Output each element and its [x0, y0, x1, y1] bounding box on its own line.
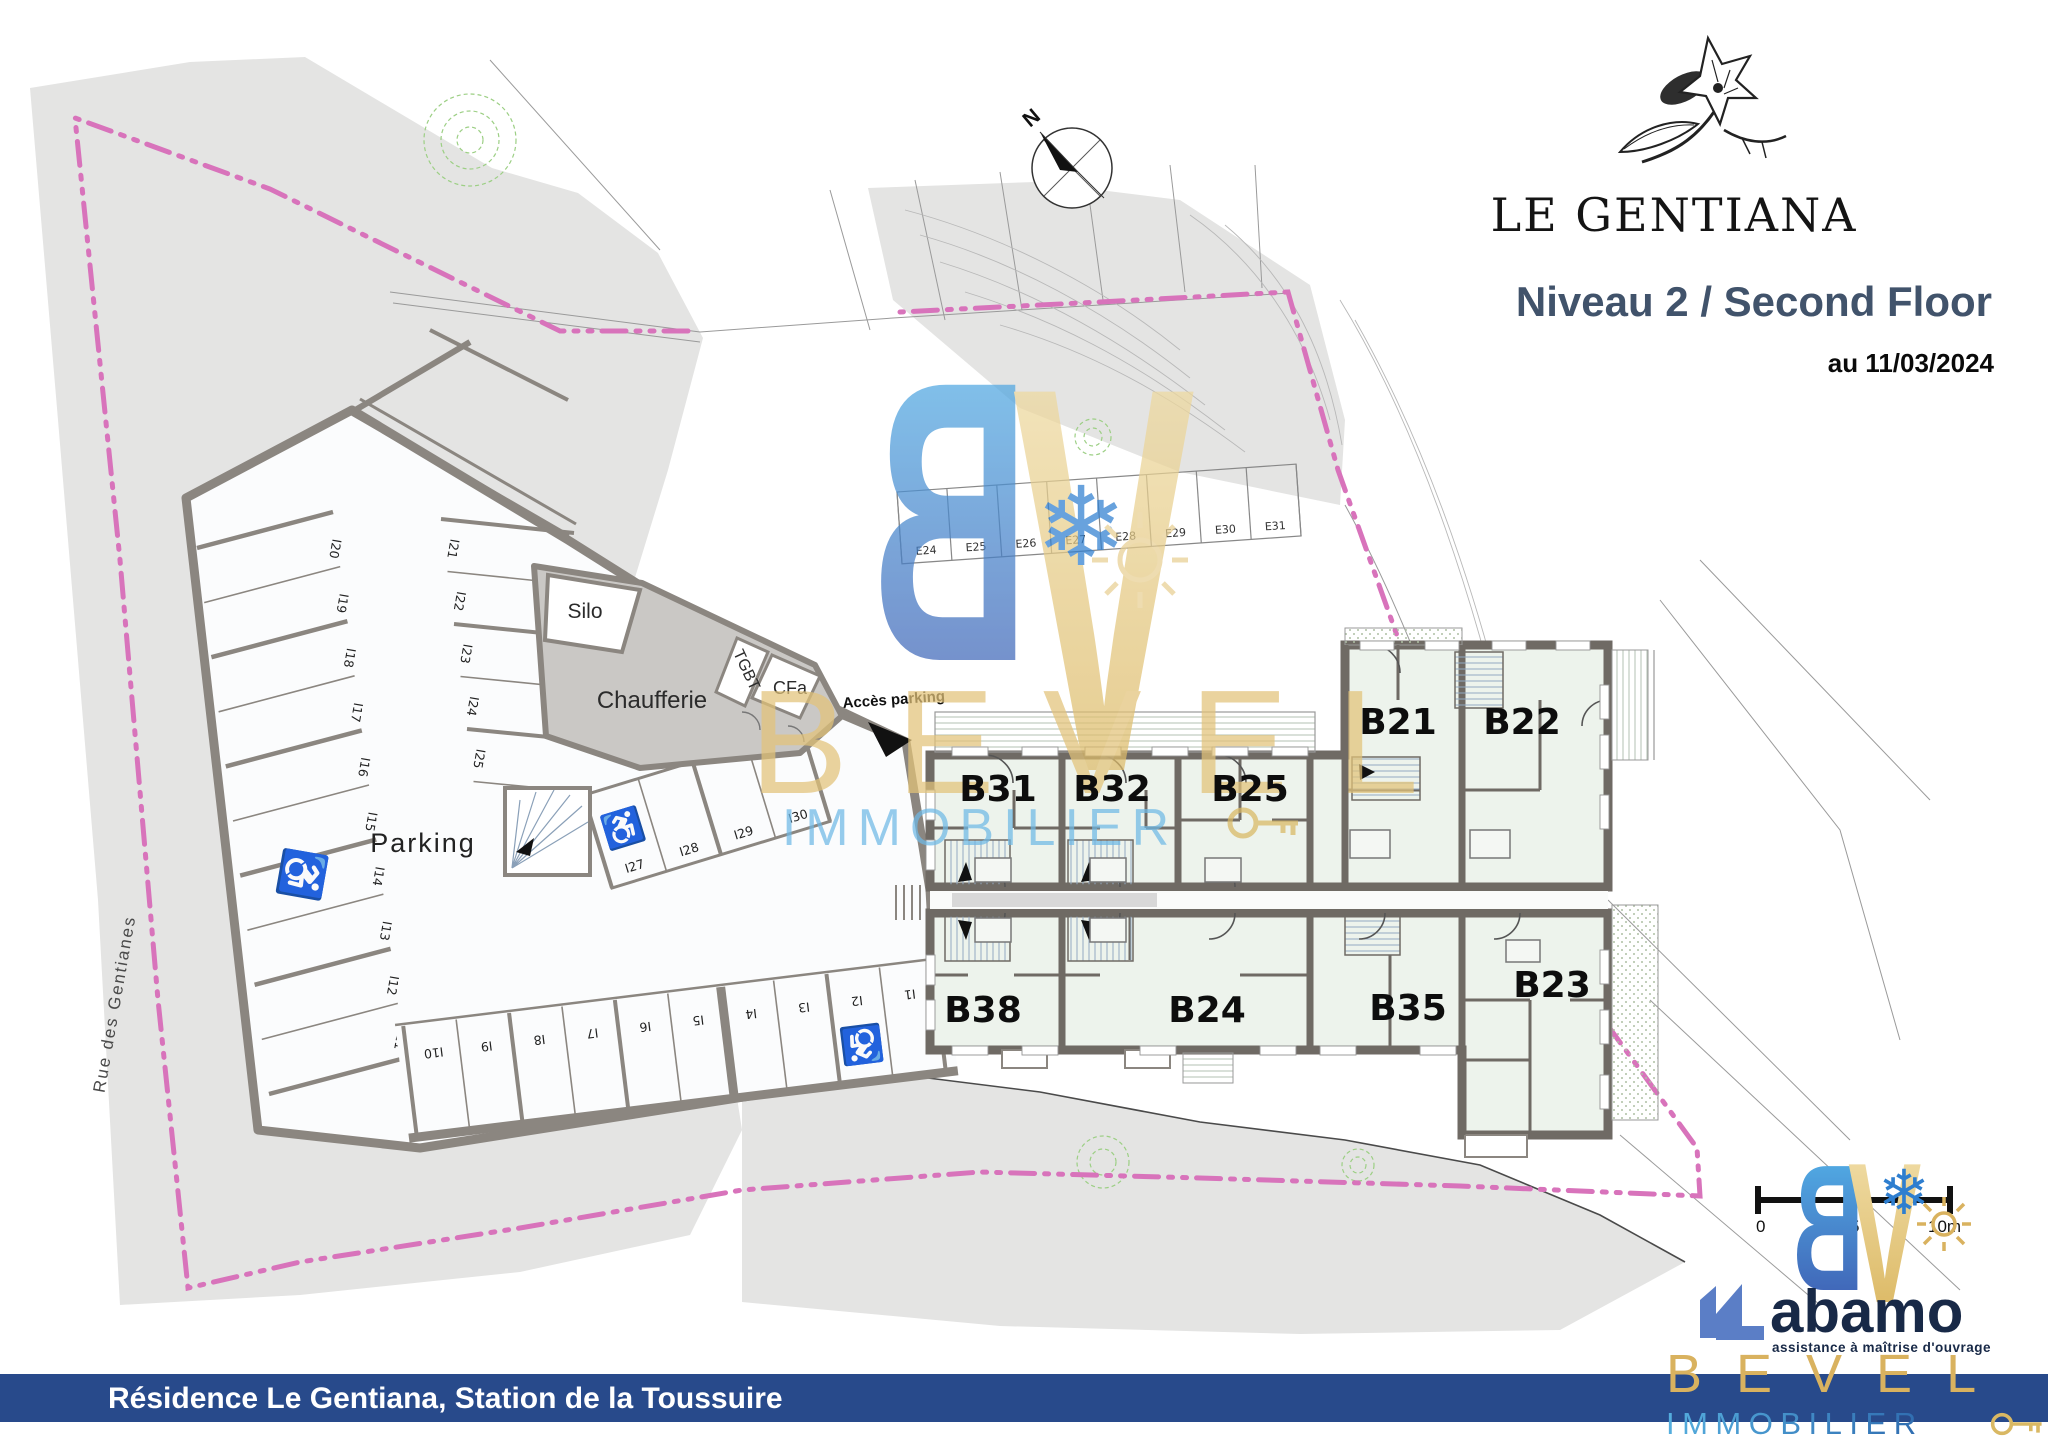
- unit-label: B22: [1483, 702, 1561, 743]
- window: [1260, 1046, 1296, 1055]
- scale-zero: 0: [1756, 1217, 1765, 1236]
- east-balcony: [1612, 650, 1648, 760]
- window: [1600, 1010, 1609, 1044]
- stall-label: I5: [692, 1012, 705, 1028]
- window: [1600, 735, 1609, 769]
- unit-label: B32: [1073, 769, 1151, 810]
- window: [1600, 685, 1609, 719]
- logo-bevel-immobilier: BEVEL IMMOBILIER: [1666, 1344, 2042, 1441]
- window: [1556, 641, 1590, 650]
- window: [952, 1046, 988, 1055]
- parking-area-label: Parking: [370, 828, 476, 858]
- stall-label: I3: [797, 999, 810, 1015]
- brand-title: LE GENTIANA: [1491, 188, 1858, 242]
- immobilier-name: IMMOBILIER: [1666, 1406, 1924, 1441]
- window: [1022, 1046, 1058, 1055]
- floorplan-page: I20I19I18I17I16I15I14I13I12I11 I21I22I23…: [0, 0, 2048, 1447]
- window: [1360, 641, 1394, 650]
- header: LE GENTIANA Niveau 2 / Second Floor au 1…: [1491, 38, 1995, 378]
- unit-label: B23: [1513, 965, 1591, 1006]
- silo-label: Silo: [567, 600, 602, 623]
- stall-label: I1: [903, 986, 916, 1002]
- unit-label: B31: [959, 769, 1037, 810]
- stall-label: I2: [850, 993, 863, 1009]
- unit-label: B21: [1359, 702, 1437, 743]
- window: [1600, 950, 1609, 984]
- window: [1140, 1046, 1176, 1055]
- north-label: N: [1018, 104, 1044, 131]
- page-title: Niveau 2 / Second Floor: [1516, 278, 1992, 325]
- bevel-name: BEVEL: [1666, 1344, 2010, 1404]
- unit-label: B38: [944, 990, 1022, 1031]
- stall-label: I4: [744, 1006, 757, 1022]
- stall-label: E31: [1264, 519, 1286, 533]
- window: [1600, 795, 1609, 829]
- unit-label: B35: [1369, 988, 1447, 1029]
- stall-label: I6: [639, 1019, 652, 1035]
- stall-label: I9: [480, 1038, 493, 1054]
- flower-illustration: [1620, 38, 1786, 162]
- footer-text: Résidence Le Gentiana, Station de la Tou…: [108, 1382, 783, 1415]
- window: [926, 1000, 935, 1030]
- window: [1425, 641, 1459, 650]
- chaufferie-label: Chaufferie: [597, 687, 707, 714]
- window: [1492, 641, 1526, 650]
- terrace-b24: [1183, 1053, 1233, 1083]
- handicap-icon: ♿: [837, 1022, 886, 1068]
- snowflake-icon: ❄: [1035, 466, 1127, 589]
- plan-date: au 11/03/2024: [1828, 348, 1995, 378]
- stall-label: I10: [423, 1044, 444, 1061]
- window: [1420, 1046, 1456, 1055]
- window: [926, 955, 935, 985]
- window: [1600, 1075, 1609, 1109]
- snowflake-icon: ❄: [1878, 1159, 1930, 1228]
- unit-label: B25: [1211, 769, 1289, 810]
- stall-label: I8: [533, 1032, 546, 1048]
- window: [1320, 1046, 1356, 1055]
- unit-label: B24: [1168, 990, 1246, 1031]
- terrace: [1612, 905, 1658, 1120]
- stall-label: E30: [1215, 522, 1237, 536]
- handicap-icon: ♿: [274, 845, 331, 905]
- stall-label: I7: [586, 1025, 599, 1041]
- abamo-name: abamo: [1770, 1278, 1963, 1345]
- stair-core: [505, 788, 590, 875]
- site-plan-svg: I20I19I18I17I16I15I14I13I12I11 I21I22I23…: [0, 0, 2048, 1447]
